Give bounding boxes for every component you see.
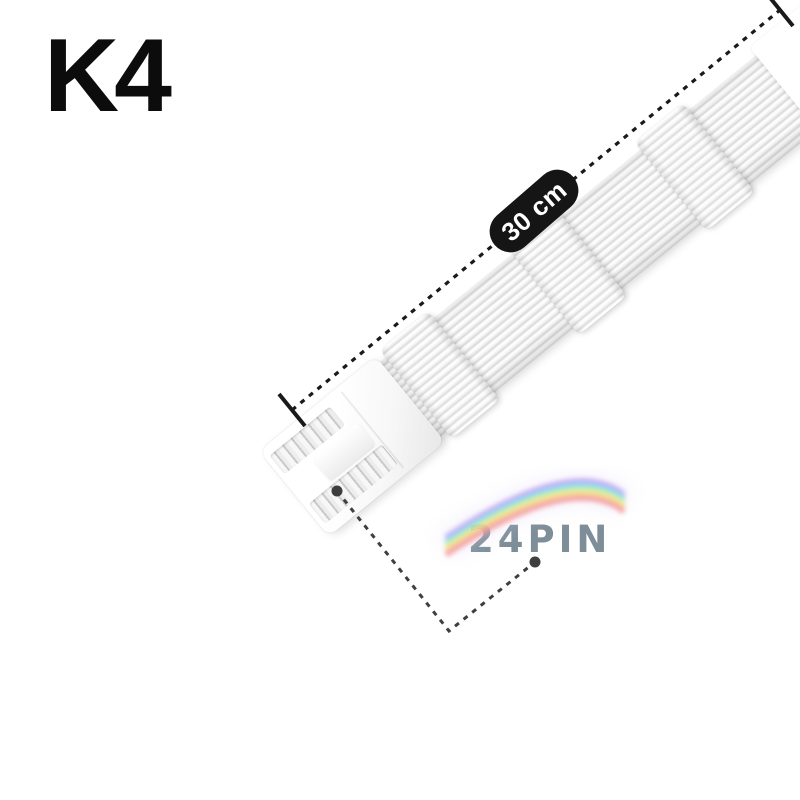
leader-dotted-line <box>337 491 535 631</box>
product-image: K4 24PIN <box>0 0 800 800</box>
variant-label: K4 <box>44 22 167 131</box>
pin-count-label: 24PIN <box>468 518 611 561</box>
